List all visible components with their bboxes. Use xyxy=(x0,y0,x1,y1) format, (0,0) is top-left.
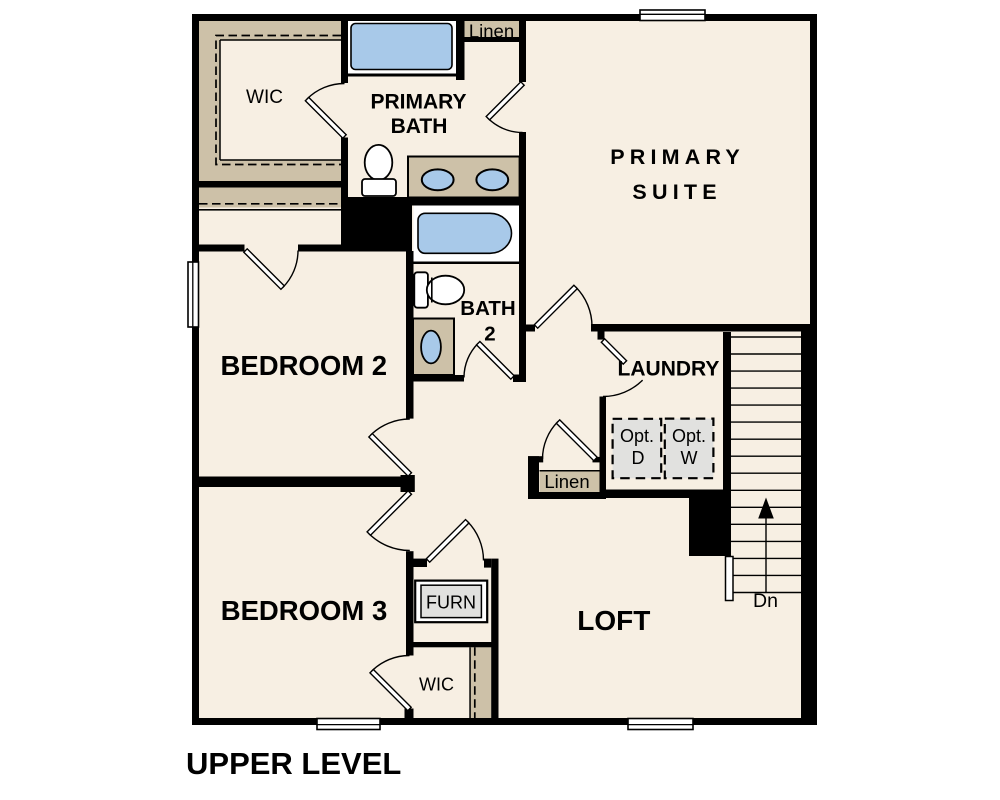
svg-text:WIC: WIC xyxy=(246,87,283,108)
svg-text:BEDROOM 2: BEDROOM 2 xyxy=(221,350,388,381)
svg-text:2: 2 xyxy=(484,323,495,346)
svg-text:LOFT: LOFT xyxy=(577,605,650,636)
svg-text:PRIMARY: PRIMARY xyxy=(370,91,466,114)
svg-text:SUITE: SUITE xyxy=(632,180,721,204)
svg-text:BEDROOM 3: BEDROOM 3 xyxy=(221,595,388,626)
svg-text:Linen: Linen xyxy=(544,471,589,492)
svg-text:W: W xyxy=(681,448,698,468)
svg-text:Linen: Linen xyxy=(469,21,514,42)
svg-text:UPPER LEVEL: UPPER LEVEL xyxy=(186,746,401,781)
svg-text:WIC: WIC xyxy=(419,675,454,695)
svg-text:BATH: BATH xyxy=(391,115,448,138)
svg-text:PRIMARY: PRIMARY xyxy=(610,145,745,169)
svg-text:Dn: Dn xyxy=(753,590,778,612)
svg-text:LAUNDRY: LAUNDRY xyxy=(618,358,720,381)
svg-text:Opt.: Opt. xyxy=(620,426,654,446)
svg-text:Opt.: Opt. xyxy=(672,426,706,446)
svg-text:FURN: FURN xyxy=(426,593,476,613)
svg-text:BATH: BATH xyxy=(460,297,515,320)
svg-text:D: D xyxy=(632,448,645,468)
